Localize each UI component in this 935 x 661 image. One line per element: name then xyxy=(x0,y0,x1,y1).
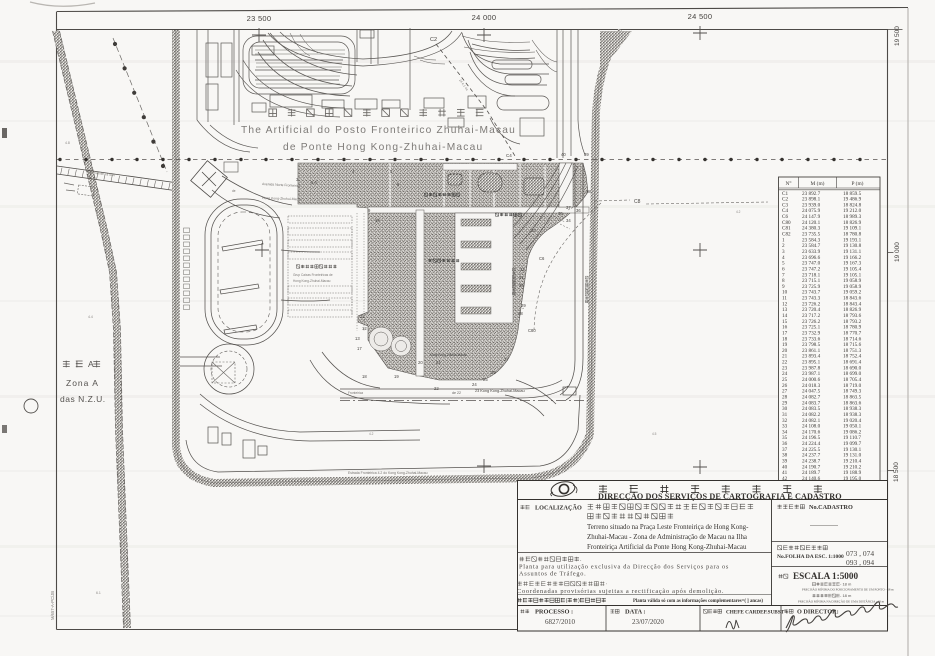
svg-text:Coordenadas provisórias sujeit: Coordenadas provisórias sujeitas a recti… xyxy=(517,588,724,595)
svg-text:No.CADASTRO: No.CADASTRO xyxy=(809,504,853,511)
svg-text:29: 29 xyxy=(521,303,526,308)
svg-text:C80: C80 xyxy=(528,328,536,333)
svg-text:ESCALA 1:5000: ESCALA 1:5000 xyxy=(793,571,858,581)
svg-text:21: 21 xyxy=(436,360,441,365)
svg-text:(: ( xyxy=(566,598,568,604)
svg-text:Planta para utilização exclusi: Planta para utilização exclusiva da Dire… xyxy=(519,564,729,571)
svg-text:31: 31 xyxy=(519,275,524,280)
svg-text:26: 26 xyxy=(491,370,496,375)
svg-text:4.2: 4.2 xyxy=(410,215,415,219)
svg-text:22: 22 xyxy=(434,386,439,391)
svg-text:35: 35 xyxy=(558,211,563,216)
svg-text:DATA :: DATA : xyxy=(625,609,646,616)
svg-text:13: 13 xyxy=(355,336,360,341)
svg-text:23 Kong Kong-Zhuhai-Macau: 23 Kong Kong-Zhuhai-Macau xyxy=(475,389,525,393)
svg-text:Fronteirica: Fronteirica xyxy=(348,391,363,395)
svg-text:de 22: de 22 xyxy=(452,391,461,395)
svg-text:18 500: 18 500 xyxy=(893,462,900,482)
svg-text:DIRECÇÃO DOS SERVIÇOS DE CARTO: DIRECÇÃO DOS SERVIÇOS DE CARTOGRAFIA E C… xyxy=(598,492,842,501)
svg-text:24 000: 24 000 xyxy=(472,13,497,22)
svg-text:4.2: 4.2 xyxy=(736,210,741,214)
svg-text:4.8: 4.8 xyxy=(65,141,70,145)
svg-text:33: 33 xyxy=(531,228,536,233)
svg-text:19 500: 19 500 xyxy=(894,26,901,46)
svg-text:No.FOLHA DA ESC. 1:1000: No.FOLHA DA ESC. 1:1000 xyxy=(777,554,844,560)
svg-text:A: A xyxy=(88,359,94,369)
svg-text:Terreno situado na Praça Leste: Terreno situado na Praça Leste Fronteiri… xyxy=(587,524,749,531)
svg-text:17: 17 xyxy=(357,346,362,351)
svg-text:Kong Kong-Zhuhai-Macau: Kong Kong-Zhuhai-Macau xyxy=(430,353,467,357)
svg-text:25: 25 xyxy=(483,377,488,382)
svg-text:23/07/2020: 23/07/2020 xyxy=(632,618,664,626)
svg-text:27: 27 xyxy=(504,357,509,362)
svg-text:40: 40 xyxy=(561,152,566,157)
svg-text:12: 12 xyxy=(362,326,367,331)
svg-text:4.5: 4.5 xyxy=(652,432,657,436)
svg-text:M/657-A-PC/JB: M/657-A-PC/JB xyxy=(50,591,55,620)
svg-text:6827/2010: 6827/2010 xyxy=(545,618,575,626)
svg-text:·: · xyxy=(606,582,608,588)
svg-text:19 000: 19 000 xyxy=(894,242,901,262)
svg-text:das N.Z.U.: das N.Z.U. xyxy=(60,394,106,404)
svg-text:--------------: -------------- xyxy=(810,523,838,529)
svg-text:Zona A: Zona A xyxy=(66,378,99,388)
svg-text:37: 37 xyxy=(566,205,571,210)
svg-text:- 18 m: - 18 m xyxy=(840,593,852,598)
svg-text:C8: C8 xyxy=(634,199,641,205)
svg-text:C2: C2 xyxy=(430,37,437,43)
svg-text:32: 32 xyxy=(520,267,525,272)
svg-text:Fronteiriça Artificial da Pont: Fronteiriça Artificial da Ponte Hong Kon… xyxy=(587,544,747,551)
svg-text:4.4: 4.4 xyxy=(88,315,93,319)
svg-text:4.2: 4.2 xyxy=(369,432,374,436)
svg-text:5.4: 5.4 xyxy=(311,180,317,185)
svg-text:093 , 094: 093 , 094 xyxy=(846,558,874,567)
svg-text:): ) xyxy=(578,598,580,604)
svg-text:30: 30 xyxy=(519,283,524,288)
svg-text:C4: C4 xyxy=(506,153,512,158)
svg-text:34: 34 xyxy=(566,218,571,223)
svg-text:20: 20 xyxy=(418,360,423,365)
svg-text:CHEFE CARDEP.SUBST°:: CHEFE CARDEP.SUBST°: xyxy=(726,609,788,616)
svg-text:19: 19 xyxy=(394,374,399,379)
svg-text:24 500: 24 500 xyxy=(688,12,713,21)
svg-text:28: 28 xyxy=(518,311,523,316)
svg-text:073 , 074: 073 , 074 xyxy=(846,549,874,558)
svg-text:Planta válida só com as inform: Planta válida só com as informações comp… xyxy=(633,599,763,604)
svg-text:de Ponte Hong Kong-Zhuhai-Maca: de Ponte Hong Kong-Zhuhai-Macau xyxy=(283,142,483,153)
svg-text:18: 18 xyxy=(362,374,367,379)
svg-text:6.1: 6.1 xyxy=(96,591,101,595)
svg-text:PROCESSO :: PROCESSO : xyxy=(535,609,573,616)
svg-text:P (m): P (m) xyxy=(852,180,864,187)
svg-text:The Artificial do Posto Fronte: The Artificial do Posto Fronteirico Zhuh… xyxy=(241,125,516,136)
svg-text:C6: C6 xyxy=(539,256,545,261)
svg-text:N°: N° xyxy=(785,180,791,187)
svg-text:Assuntos de Tráfego.: Assuntos de Tráfego. xyxy=(519,571,586,578)
svg-text:38: 38 xyxy=(586,189,591,194)
svg-text:11: 11 xyxy=(360,314,365,319)
svg-text:23 500: 23 500 xyxy=(247,14,272,23)
svg-text:10: 10 xyxy=(375,218,380,223)
svg-text:LOCALIZAÇÃO: LOCALIZAÇÃO xyxy=(535,504,582,512)
svg-text:Hong Kong-Zhuhai-Macau: Hong Kong-Zhuhai-Macau xyxy=(293,279,331,283)
svg-text:Grup Caixas Fronteiricas de: Grup Caixas Fronteiricas de xyxy=(293,273,333,277)
svg-text:Zhuhai-Macau - Zona de Adminis: Zhuhai-Macau - Zona de Administração de … xyxy=(587,534,747,541)
svg-text:36: 36 xyxy=(576,208,581,213)
svg-text:M (m): M (m) xyxy=(811,180,825,187)
svg-text:39: 39 xyxy=(584,152,589,157)
svg-text:PRECISÃO MÍNIMA DO POSICIONAME: PRECISÃO MÍNIMA DO POSICIONAMENTO DE UM … xyxy=(802,587,894,592)
svg-text:PRECISÃO MÍNIMA NA DIREÇÃO DE: PRECISÃO MÍNIMA NA DIREÇÃO DE UMA DISTÂN… xyxy=(798,599,885,604)
svg-text:24: 24 xyxy=(472,382,477,387)
svg-text:- 18 m: - 18 m xyxy=(840,582,852,587)
svg-text:Estrada Fronteirica 4.2 do: Estrada Fronteirica 4.2 do Kong Kong-Zhu… xyxy=(348,471,428,475)
svg-text:de: de xyxy=(232,189,236,193)
